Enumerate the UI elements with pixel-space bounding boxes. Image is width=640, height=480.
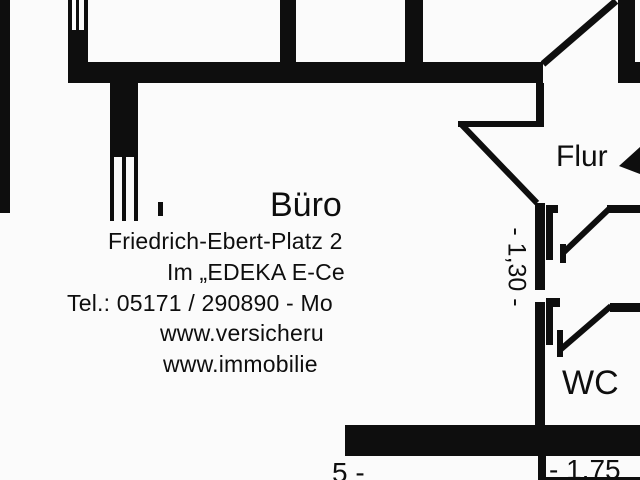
overlay-website-1: www.versicheru [160,322,324,345]
overlay-location: Im „EDEKA E-Ce [167,261,345,284]
wall-middle-upper [535,203,545,290]
overlay-website-2: www.immobilie [163,353,318,376]
door-leaf-end-stub [557,330,563,357]
dimension-arrowhead-icon [619,147,640,174]
room-label-wc: WC [562,366,619,400]
wall-stub-upper-right [607,205,640,213]
wall-stub-top-a [280,0,296,62]
door-swing-line [461,124,537,203]
dimension-left-partial: 5 - [332,459,365,480]
dimension-wc-width: - 1,75 [549,456,621,480]
wall-right-top-vertical [618,0,635,64]
door-swing-line [560,306,611,350]
overlay-address: Friedrich-Ebert-Platz 2 [108,230,343,253]
door-leaf-bar [546,205,553,260]
wall-bottom [345,425,640,456]
floor-plan-canvas: Flur WC - 1,30 - 95 5 - - 1,75 Büro Frie… [0,0,640,480]
wall-stub-lower-right [610,303,640,312]
dimension-right-partial: 95 [637,106,640,134]
door-swing-line [543,1,616,64]
overlay-phone: Tel.: 05171 / 290890 - Mo [67,292,333,315]
wall-divider-below [538,456,546,480]
room-label-flur: Flur [556,142,608,172]
wall-segment [68,30,88,63]
door-leaf-bar [546,300,553,345]
overlay-title: Büro [270,188,342,222]
wall-segment [110,83,138,157]
door-jamb [536,83,544,125]
window-pane-line [84,0,88,33]
overlay-text-block: Büro Friedrich-Ebert-Platz 2 Im „EDEKA E… [0,185,347,400]
wall-stub-top-b [405,0,423,62]
wall-main-horizontal [68,62,543,83]
dimension-hallway-height: - 1,30 - [504,227,529,306]
wall-right-top-horizontal [618,62,640,83]
window-pane-line [68,0,72,33]
door-swing-line [564,209,609,252]
door-leaf-line [458,121,544,127]
window-pane-line [76,0,79,33]
wall-left-exterior [0,0,10,213]
wall-middle-lower [535,302,545,427]
